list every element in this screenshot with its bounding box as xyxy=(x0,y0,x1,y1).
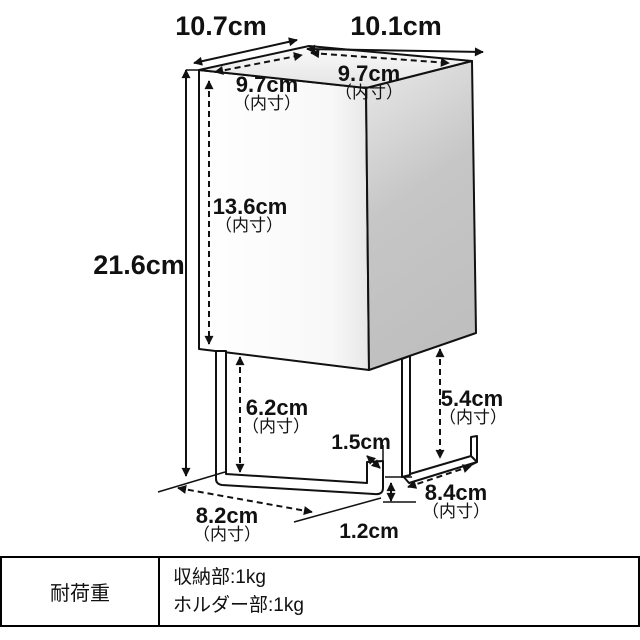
spec-row-header-text: 耐荷重 xyxy=(50,577,110,606)
outer-depth-label: 10.7cm xyxy=(175,11,267,41)
outer-width-label: 10.1cm xyxy=(350,11,442,41)
bar-thickness-label: 1.2cm xyxy=(339,520,399,543)
spec-table: 耐荷重 収納部:1kg ホルダー部:1kg xyxy=(0,556,640,627)
inner-height-note: （内寸） xyxy=(215,216,283,235)
holder-depth-note: （内寸） xyxy=(422,502,490,521)
holder-back-bottom-bar xyxy=(403,456,477,483)
spec-value-line-2: ホルダー部:1kg xyxy=(173,592,638,620)
hook-lip-label: 1.5cm xyxy=(331,431,391,454)
spec-row-values: 収納部:1kg ホルダー部:1kg xyxy=(160,558,638,625)
holder-back-arm xyxy=(402,356,410,477)
diagram-svg: 10.7cm 10.1cm 9.7cm （内寸） 9.7cm （内寸） 13.6… xyxy=(0,0,640,556)
product-dimension-diagram: 10.7cm 10.1cm 9.7cm （内寸） 9.7cm （内寸） 13.6… xyxy=(0,0,640,640)
extension-line-bottom-left xyxy=(158,472,225,492)
spec-value-line-1: 収納部:1kg xyxy=(173,564,638,592)
inner-width-note: （内寸） xyxy=(335,83,403,102)
box-right-face xyxy=(366,61,476,370)
pointer-line-bar-thickness xyxy=(294,498,381,522)
spec-row-header: 耐荷重 xyxy=(2,558,160,625)
left-clearance-note: （内寸） xyxy=(242,417,310,436)
inner-depth-note: （内寸） xyxy=(233,94,301,113)
outer-height-label: 21.6cm xyxy=(93,250,185,280)
holder-width-note: （内寸） xyxy=(193,525,261,544)
right-clearance-note: （内寸） xyxy=(439,408,507,427)
